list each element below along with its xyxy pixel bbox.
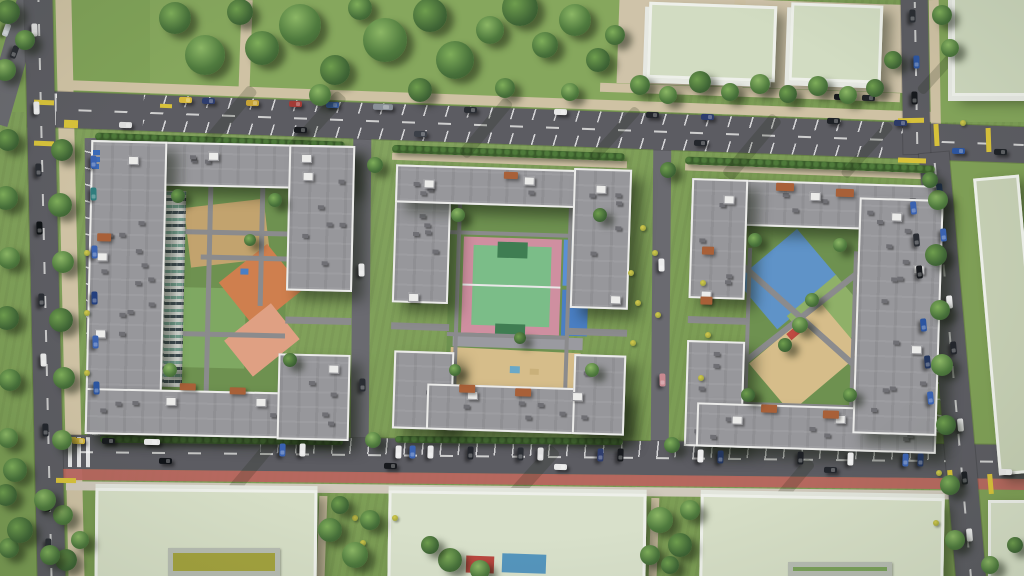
courtyard-path bbox=[688, 316, 748, 325]
roof-vent bbox=[725, 280, 731, 284]
car bbox=[288, 101, 301, 107]
car bbox=[697, 449, 703, 462]
tree bbox=[1007, 537, 1023, 553]
tree bbox=[367, 157, 383, 173]
roof-vent bbox=[713, 363, 719, 367]
tree bbox=[436, 41, 474, 79]
car bbox=[912, 233, 919, 246]
tree bbox=[244, 234, 256, 246]
yellow-shrub bbox=[628, 270, 634, 276]
tree bbox=[0, 369, 21, 391]
yellow-shrub bbox=[635, 300, 641, 306]
yellow-shrub bbox=[700, 280, 706, 286]
tree bbox=[163, 363, 177, 377]
car bbox=[913, 55, 919, 68]
school-top-2 bbox=[789, 2, 884, 83]
tree bbox=[421, 536, 439, 554]
tree bbox=[630, 75, 650, 95]
roof-vent bbox=[793, 208, 799, 212]
tree bbox=[640, 545, 660, 565]
car bbox=[293, 127, 306, 133]
roof-vent bbox=[699, 239, 705, 243]
roof-vent bbox=[810, 426, 816, 430]
car bbox=[91, 291, 97, 304]
tree bbox=[843, 388, 857, 402]
tree bbox=[748, 233, 762, 247]
car bbox=[553, 464, 566, 470]
tree bbox=[532, 32, 558, 58]
car bbox=[101, 438, 114, 444]
tree bbox=[495, 78, 515, 98]
tree bbox=[283, 353, 297, 367]
car bbox=[902, 453, 908, 466]
roof-vent bbox=[887, 245, 893, 249]
tree bbox=[309, 84, 331, 106]
car bbox=[90, 155, 96, 168]
car bbox=[909, 201, 916, 214]
yellow-shrub bbox=[84, 370, 90, 376]
tree bbox=[605, 25, 625, 45]
roof-vent bbox=[904, 229, 910, 233]
tree bbox=[48, 193, 72, 217]
schoolyard-structure bbox=[502, 553, 547, 574]
tree bbox=[245, 31, 279, 65]
car bbox=[911, 91, 917, 104]
car bbox=[36, 221, 42, 234]
tree bbox=[668, 533, 692, 557]
tree bbox=[593, 208, 607, 222]
car bbox=[717, 450, 723, 463]
roof-vent bbox=[726, 274, 732, 278]
tree bbox=[586, 48, 610, 72]
tree bbox=[647, 507, 673, 533]
roof-vent bbox=[877, 220, 883, 224]
car bbox=[965, 528, 972, 541]
yellow-shrub bbox=[705, 332, 711, 338]
car bbox=[926, 391, 933, 404]
tree bbox=[664, 437, 680, 453]
car bbox=[537, 447, 543, 460]
car bbox=[358, 263, 364, 276]
tree bbox=[49, 308, 73, 332]
car bbox=[700, 114, 713, 120]
pergola-canopy bbox=[836, 189, 854, 198]
car bbox=[245, 100, 258, 106]
tree bbox=[318, 518, 342, 542]
roof-vent bbox=[710, 435, 716, 439]
car bbox=[178, 97, 191, 103]
tree bbox=[936, 415, 956, 435]
car bbox=[915, 265, 922, 278]
car bbox=[93, 381, 99, 394]
tree bbox=[451, 208, 465, 222]
roof-vent bbox=[890, 386, 896, 390]
tree bbox=[52, 251, 74, 273]
tree bbox=[866, 79, 884, 97]
tree bbox=[932, 5, 952, 25]
tree bbox=[660, 162, 676, 178]
roof-bulkhead bbox=[810, 192, 821, 201]
tree bbox=[941, 39, 959, 57]
car bbox=[395, 445, 401, 458]
tree bbox=[721, 83, 739, 101]
roof-vent bbox=[867, 211, 873, 215]
tree bbox=[470, 560, 490, 576]
car bbox=[279, 443, 285, 456]
tree bbox=[839, 86, 857, 104]
tree bbox=[3, 458, 27, 482]
tree bbox=[833, 238, 847, 252]
car bbox=[658, 258, 664, 271]
tree bbox=[981, 556, 999, 574]
tree bbox=[940, 475, 960, 495]
car bbox=[847, 452, 853, 465]
car bbox=[939, 228, 946, 241]
car bbox=[517, 447, 523, 460]
tree bbox=[7, 517, 33, 543]
yellow-shrub bbox=[698, 375, 704, 381]
pergola-canopy bbox=[761, 404, 777, 412]
car bbox=[553, 109, 566, 115]
tree bbox=[365, 432, 381, 448]
car bbox=[144, 439, 160, 445]
tree bbox=[53, 367, 75, 389]
car bbox=[960, 471, 967, 484]
car bbox=[40, 353, 46, 366]
tree bbox=[779, 85, 797, 103]
tree bbox=[52, 430, 72, 450]
pergola-canopy bbox=[702, 246, 714, 254]
court-surface bbox=[793, 567, 887, 571]
car bbox=[90, 187, 96, 200]
apartment-wing-roof bbox=[689, 178, 749, 300]
tree bbox=[438, 548, 462, 572]
car bbox=[919, 318, 926, 331]
tree bbox=[884, 51, 902, 69]
car bbox=[118, 122, 131, 128]
tree bbox=[53, 505, 73, 525]
pergola-canopy bbox=[700, 296, 712, 304]
yellow-shrub bbox=[352, 515, 358, 521]
car bbox=[33, 101, 39, 114]
tree bbox=[279, 4, 321, 46]
car bbox=[467, 446, 473, 459]
car bbox=[373, 104, 393, 111]
roof-vent bbox=[881, 299, 887, 303]
roof-vent bbox=[883, 388, 889, 392]
yellow-shrub bbox=[936, 470, 942, 476]
roof-bulkhead bbox=[891, 212, 902, 221]
yellow-shrub bbox=[392, 515, 398, 521]
schoolyard-court bbox=[168, 548, 280, 576]
tree bbox=[750, 74, 770, 94]
roof-vent bbox=[893, 340, 899, 344]
car bbox=[413, 131, 426, 137]
tree bbox=[449, 364, 461, 376]
tree bbox=[585, 363, 599, 377]
tree bbox=[320, 55, 350, 85]
car bbox=[797, 451, 803, 464]
car bbox=[597, 448, 603, 461]
yellow-shrub bbox=[630, 340, 636, 346]
car bbox=[693, 140, 706, 146]
car bbox=[993, 149, 1006, 155]
tree bbox=[363, 18, 407, 62]
yellow-shrub bbox=[655, 312, 661, 318]
car bbox=[617, 448, 623, 461]
roof-vent bbox=[698, 387, 704, 391]
car bbox=[42, 423, 48, 436]
car bbox=[923, 355, 930, 368]
car bbox=[92, 335, 98, 348]
roof-bulkhead bbox=[732, 415, 743, 424]
roof-vent bbox=[871, 408, 877, 412]
roof-bulkhead bbox=[723, 195, 734, 204]
yellow-shrub bbox=[960, 120, 966, 126]
yellow-shrub bbox=[84, 310, 90, 316]
car bbox=[38, 293, 44, 306]
school-top-1 bbox=[647, 2, 778, 82]
tree bbox=[741, 388, 755, 402]
tree bbox=[661, 556, 679, 574]
yellow-shrub bbox=[652, 250, 658, 256]
car bbox=[998, 469, 1011, 475]
tree bbox=[805, 293, 819, 307]
car bbox=[409, 445, 415, 458]
tree bbox=[15, 30, 35, 50]
car bbox=[383, 463, 396, 469]
car bbox=[645, 112, 658, 118]
roof-vent bbox=[714, 352, 720, 356]
tree bbox=[808, 76, 828, 96]
tree bbox=[268, 193, 282, 207]
yellow-shrub bbox=[640, 225, 646, 231]
pergola-canopy bbox=[823, 410, 839, 418]
tree bbox=[922, 172, 938, 188]
tree bbox=[342, 542, 368, 568]
car bbox=[35, 163, 41, 176]
yellow-shrub bbox=[933, 520, 939, 526]
car bbox=[949, 341, 956, 354]
aerial-residential-complex-render bbox=[0, 0, 1024, 576]
roof-vent bbox=[824, 434, 830, 438]
tree bbox=[360, 510, 380, 530]
car bbox=[91, 245, 97, 258]
building-top-corner bbox=[952, 0, 1024, 96]
tree bbox=[159, 2, 191, 34]
tree bbox=[331, 496, 349, 514]
tree bbox=[561, 83, 579, 101]
roof-bulkhead bbox=[911, 345, 922, 354]
tree bbox=[689, 71, 711, 93]
car bbox=[893, 120, 906, 126]
tree bbox=[40, 545, 60, 565]
car bbox=[909, 9, 915, 22]
tree bbox=[185, 35, 225, 75]
court-surface bbox=[173, 553, 275, 571]
tree bbox=[34, 489, 56, 511]
waste-container bbox=[93, 150, 100, 155]
yellow-shrub bbox=[84, 250, 90, 256]
car bbox=[659, 373, 665, 386]
car bbox=[299, 443, 305, 456]
car bbox=[158, 458, 171, 464]
car bbox=[201, 98, 214, 104]
car bbox=[956, 418, 963, 431]
tree bbox=[559, 4, 591, 36]
roof-vent bbox=[902, 260, 908, 264]
tree bbox=[227, 0, 253, 25]
tree bbox=[408, 78, 432, 102]
roof-vent bbox=[783, 193, 789, 197]
tree bbox=[925, 244, 947, 266]
tree bbox=[514, 332, 526, 344]
tree bbox=[930, 300, 950, 320]
roof-vent bbox=[821, 199, 827, 203]
pergola-canopy bbox=[776, 183, 794, 192]
car bbox=[823, 467, 836, 473]
car bbox=[951, 148, 964, 154]
car bbox=[826, 118, 839, 124]
tree bbox=[51, 139, 73, 161]
car bbox=[427, 445, 433, 458]
tree bbox=[171, 189, 185, 203]
roof-vent bbox=[897, 276, 903, 280]
tree bbox=[680, 500, 700, 520]
tree bbox=[928, 190, 948, 210]
schoolyard-court bbox=[788, 562, 892, 576]
tree bbox=[659, 86, 677, 104]
car bbox=[359, 378, 365, 391]
car bbox=[917, 453, 923, 466]
car bbox=[463, 107, 476, 113]
tree bbox=[945, 530, 965, 550]
roof-vent bbox=[920, 382, 926, 386]
tree bbox=[792, 317, 808, 333]
tree bbox=[778, 338, 792, 352]
car bbox=[71, 438, 84, 444]
tree bbox=[931, 354, 953, 376]
tree bbox=[71, 531, 89, 549]
tree bbox=[476, 16, 504, 44]
